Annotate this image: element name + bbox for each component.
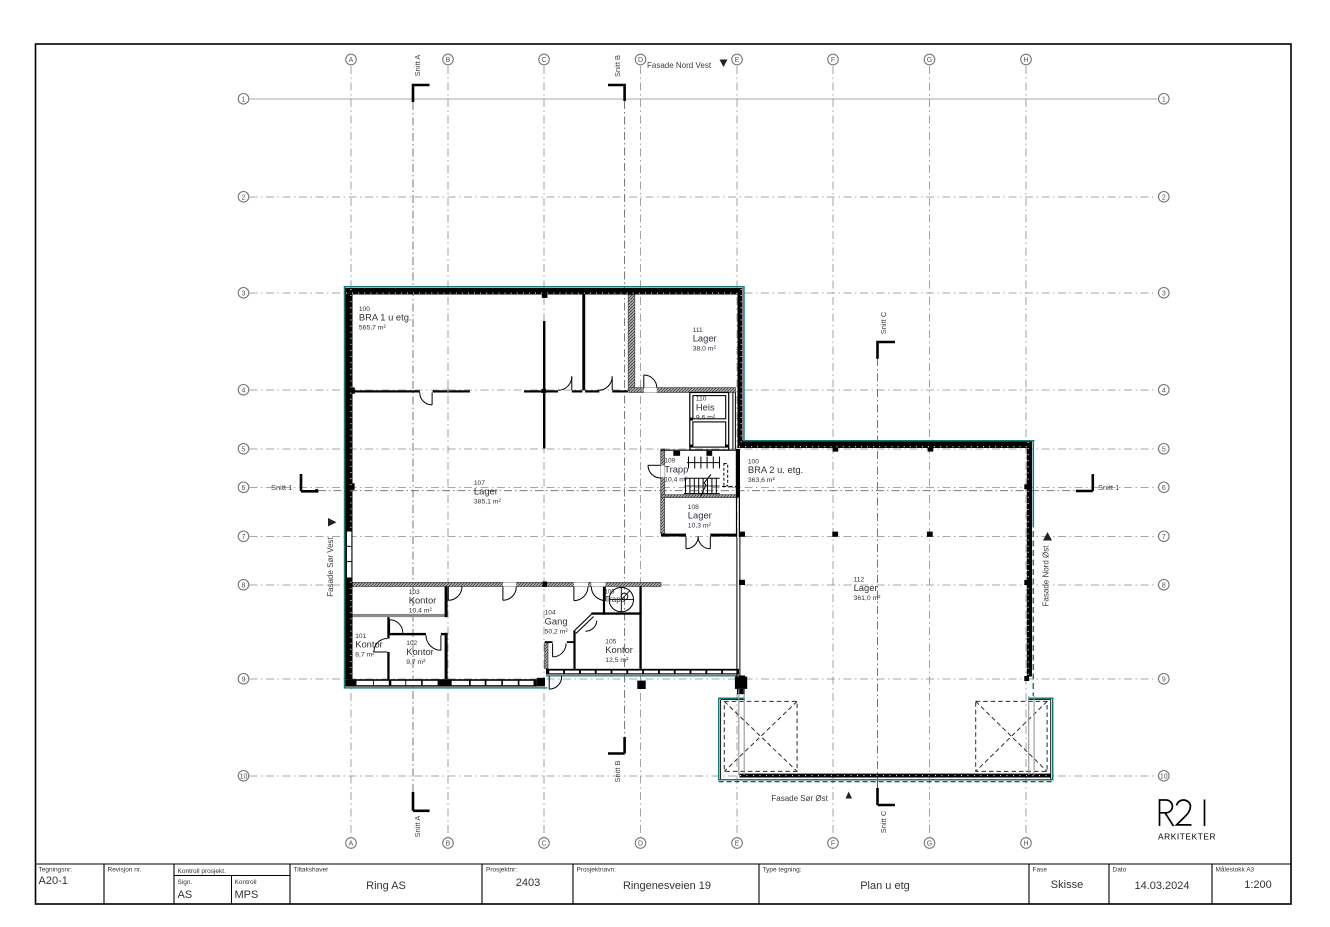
svg-text:38,0 m²: 38,0 m² <box>693 346 717 353</box>
svg-text:H: H <box>1023 57 1028 64</box>
svg-text:Fasade Nord Vest: Fasade Nord Vest <box>647 61 712 70</box>
svg-text:Plan u etg: Plan u etg <box>860 880 910 892</box>
svg-text:Ringenesveien 19: Ringenesveien 19 <box>623 880 711 892</box>
svg-text:8: 8 <box>1162 582 1166 589</box>
svg-text:Snitt A: Snitt A <box>413 816 422 838</box>
svg-text:BRA 1 u etg.: BRA 1 u etg. <box>359 312 412 323</box>
svg-text:AS: AS <box>178 889 193 901</box>
svg-text:7: 7 <box>242 534 246 541</box>
svg-text:385,1 m²: 385,1 m² <box>474 499 502 506</box>
svg-text:Prosjektnavn:: Prosjektnavn: <box>577 867 617 874</box>
svg-text:Lager: Lager <box>688 510 712 521</box>
svg-text:Sign.: Sign. <box>178 879 193 886</box>
svg-text:Heis: Heis <box>696 401 715 412</box>
svg-text:10: 10 <box>1160 773 1168 780</box>
svg-text:Lager: Lager <box>854 582 878 593</box>
svg-text:Snitt C: Snitt C <box>879 311 888 334</box>
svg-text:3: 3 <box>242 290 246 297</box>
svg-text:2: 2 <box>242 194 246 201</box>
svg-text:Kontor: Kontor <box>605 644 633 655</box>
svg-text:Prosjektnr:: Prosjektnr: <box>486 867 517 874</box>
svg-text:10,3 m²: 10,3 m² <box>688 523 712 530</box>
svg-text:Kontor: Kontor <box>355 638 383 649</box>
svg-text:2403: 2403 <box>516 877 540 889</box>
svg-text:Tiltakshaver: Tiltakshaver <box>294 867 330 874</box>
svg-text:Type tegning:: Type tegning: <box>763 867 802 874</box>
svg-text:8,7 m²: 8,7 m² <box>355 651 375 658</box>
svg-text:Fase: Fase <box>1033 867 1048 874</box>
svg-text:12,5 m²: 12,5 m² <box>605 657 629 664</box>
svg-text:F: F <box>831 57 835 64</box>
svg-text:1: 1 <box>1162 96 1166 103</box>
svg-text:C: C <box>541 841 546 848</box>
svg-text:1:200: 1:200 <box>1244 879 1272 891</box>
svg-text:5: 5 <box>1162 446 1166 453</box>
svg-text:Dato: Dato <box>1113 867 1127 874</box>
svg-text:Snitt C: Snitt C <box>879 810 888 833</box>
svg-text:6: 6 <box>242 485 246 492</box>
svg-text:14.03.2024: 14.03.2024 <box>1134 880 1189 892</box>
svg-text:A: A <box>349 841 354 848</box>
svg-text:50,2 m²: 50,2 m² <box>545 628 569 635</box>
svg-text:BRA 2 u. etg.: BRA 2 u. etg. <box>748 464 803 475</box>
svg-text:7: 7 <box>1162 534 1166 541</box>
svg-text:Kontor: Kontor <box>409 595 437 606</box>
svg-text:Fasade Sør Vest: Fasade Sør Vest <box>326 536 335 596</box>
svg-text:Revisjon nr.: Revisjon nr. <box>108 867 142 874</box>
svg-text:Fasade Sør Øst: Fasade Sør Øst <box>771 794 828 803</box>
svg-text:E: E <box>735 57 740 64</box>
svg-text:1: 1 <box>242 96 246 103</box>
svg-text:Kontroll: Kontroll <box>235 879 258 886</box>
svg-text:Ring AS: Ring AS <box>366 880 406 892</box>
svg-text:C: C <box>541 57 546 64</box>
svg-text:2: 2 <box>1162 194 1166 201</box>
svg-text:F: F <box>831 841 835 848</box>
svg-text:D: D <box>638 841 643 848</box>
svg-text:Fasade Nord Øst: Fasade Nord Øst <box>1042 545 1051 607</box>
svg-text:565,7 m²: 565,7 m² <box>359 325 387 332</box>
svg-text:Snitt 1: Snitt 1 <box>271 483 292 492</box>
svg-text:G: G <box>927 841 932 848</box>
svg-text:361,0 m²: 361,0 m² <box>854 595 882 602</box>
svg-text:9: 9 <box>1162 676 1166 683</box>
svg-text:D: D <box>638 57 643 64</box>
svg-text:Gang: Gang <box>545 615 568 626</box>
svg-text:Skisse: Skisse <box>1051 879 1083 891</box>
svg-text:Trapp: Trapp <box>605 595 626 604</box>
svg-text:ARKITEKTER: ARKITEKTER <box>1158 832 1216 842</box>
svg-text:8: 8 <box>242 582 246 589</box>
svg-text:Lager: Lager <box>693 333 717 344</box>
svg-text:Snitt B: Snitt B <box>613 760 622 782</box>
svg-text:4: 4 <box>1162 387 1166 394</box>
svg-text:9,7 m²: 9,7 m² <box>406 659 426 666</box>
svg-text:Snitt B: Snitt B <box>613 55 622 77</box>
svg-text:9,6 m²: 9,6 m² <box>696 414 716 421</box>
svg-text:Kontroll prosjekt.: Kontroll prosjekt. <box>178 868 227 875</box>
svg-text:3: 3 <box>1162 290 1166 297</box>
svg-text:G: G <box>927 57 932 64</box>
svg-text:5: 5 <box>242 446 246 453</box>
svg-text:Kontor: Kontor <box>406 646 434 657</box>
svg-text:Trapp: Trapp <box>664 463 688 474</box>
svg-text:B: B <box>446 57 451 64</box>
svg-text:A20-1: A20-1 <box>39 875 68 887</box>
svg-text:H: H <box>1023 841 1028 848</box>
svg-text:E: E <box>735 841 740 848</box>
svg-text:Lager: Lager <box>474 486 498 497</box>
svg-text:Målestokk A3: Målestokk A3 <box>1216 866 1255 874</box>
svg-text:Snitt A: Snitt A <box>413 55 422 77</box>
svg-text:Snitt 1: Snitt 1 <box>1098 483 1119 492</box>
svg-text:10,4 m²: 10,4 m² <box>409 608 433 615</box>
svg-text:4: 4 <box>242 387 246 394</box>
svg-text:10: 10 <box>240 773 248 780</box>
svg-text:Tegningsnr:: Tegningsnr: <box>39 867 73 874</box>
svg-text:MPS: MPS <box>235 889 259 901</box>
svg-text:9: 9 <box>242 676 246 683</box>
svg-text:363,6 m²: 363,6 m² <box>748 477 776 484</box>
svg-text:10,4 m²: 10,4 m² <box>664 476 688 483</box>
svg-text:6: 6 <box>1162 485 1166 492</box>
svg-text:A: A <box>349 57 354 64</box>
svg-text:B: B <box>446 841 451 848</box>
